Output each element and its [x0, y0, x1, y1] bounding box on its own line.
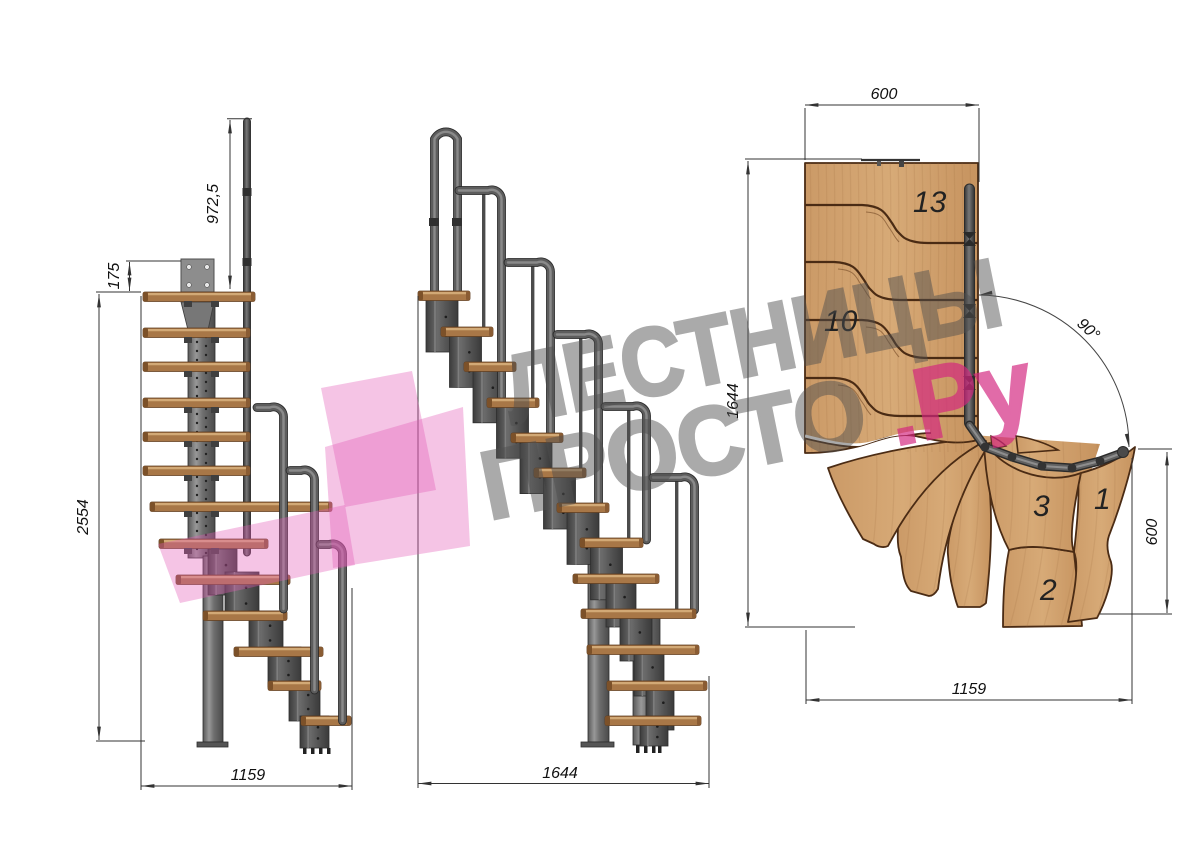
svg-text:1159: 1159 [231, 767, 266, 784]
svg-text:600: 600 [871, 86, 898, 103]
svg-text:3: 3 [1033, 490, 1050, 523]
svg-text:2: 2 [1039, 574, 1057, 607]
svg-text:1: 1 [1094, 483, 1111, 516]
svg-text:2554: 2554 [75, 499, 92, 536]
svg-text:175: 175 [106, 263, 123, 290]
svg-text:1159: 1159 [952, 681, 987, 698]
svg-text:972,5: 972,5 [205, 184, 222, 224]
svg-text:1644: 1644 [542, 765, 578, 782]
svg-text:600: 600 [1144, 519, 1161, 546]
svg-text:13: 13 [913, 186, 947, 219]
